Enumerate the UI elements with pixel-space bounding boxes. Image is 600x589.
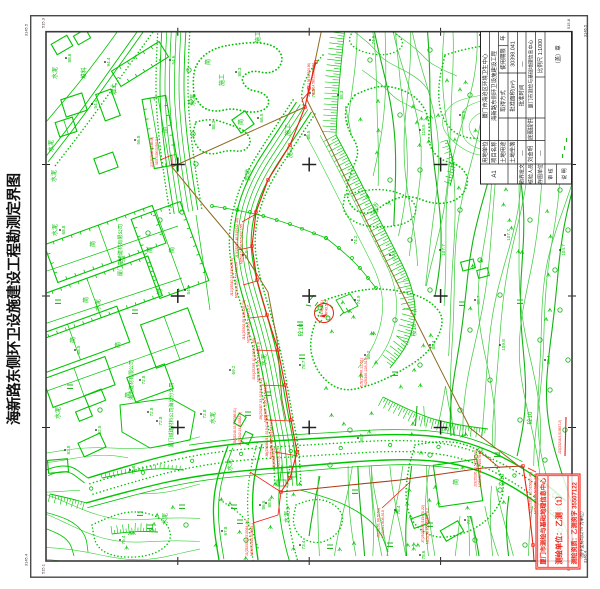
svg-text:水泥: 水泥	[209, 412, 217, 424]
svg-text:107.7: 107.7	[441, 244, 446, 256]
svg-text:104.7: 104.7	[561, 244, 566, 256]
svg-text:88.5: 88.5	[306, 130, 311, 139]
svg-text:J1(25203.92,515364.41): J1(25203.92,515364.41)	[245, 520, 249, 556]
svg-text:78.6: 78.6	[421, 550, 426, 559]
svg-text:N25340.128,515: N25340.128,515	[364, 358, 368, 386]
svg-text:厦门市海沧区环境卫生中心: 厦门市海沧区环境卫生中心	[481, 53, 489, 118]
svg-text:74.2: 74.2	[353, 235, 358, 244]
svg-text:72.8: 72.8	[202, 409, 207, 418]
svg-text:填土: 填土	[110, 83, 118, 95]
svg-text:3146.5: 3146.5	[583, 24, 588, 37]
svg-text:取得方式: 取得方式	[499, 90, 507, 112]
svg-text:J12(25310.23,515428.6): J12(25310.23,515428.6)	[230, 258, 234, 296]
svg-text:土地坐落: 土地坐落	[509, 141, 517, 163]
svg-text:水泥: 水泥	[161, 513, 169, 525]
svg-text:J11(25302.95,515425.78): J11(25302.95,515425.78)	[242, 300, 246, 340]
svg-text:A1: A1	[492, 170, 498, 178]
svg-text:测绘单位： 乙测 （1）: 测绘单位： 乙测 （1）	[555, 492, 564, 565]
svg-text:存图单位: 存图单位	[537, 164, 544, 184]
svg-text:菜地: 菜地	[244, 169, 252, 181]
svg-text:底图提供: 底图提供	[527, 118, 535, 140]
svg-text:施工: 施工	[286, 146, 294, 158]
svg-text:简: 简	[114, 342, 122, 348]
svg-text:88.6: 88.6	[67, 53, 72, 62]
svg-text:N25295.105,515421.9: N25295.105,515421.9	[257, 342, 261, 382]
svg-text:水泥: 水泥	[51, 224, 59, 236]
svg-text:515.3: 515.3	[41, 17, 46, 28]
svg-text:72.8: 72.8	[149, 407, 154, 416]
svg-text:82.8: 82.8	[66, 445, 71, 454]
svg-text:刘金明: 刘金明	[527, 146, 535, 162]
svg-text:N743,515: N743,515	[325, 300, 329, 316]
svg-text:J17(25370.80,515365.01): J17(25370.80,515365.01)	[150, 137, 154, 167]
svg-text:桉10: 桉10	[410, 323, 418, 336]
svg-text:515.1: 515.1	[41, 563, 46, 574]
svg-text:厦门市测绘与基础地理信息中心: 厦门市测绘与基础地理信息中心	[539, 477, 547, 565]
svg-text:88.7: 88.7	[476, 295, 481, 304]
svg-text:简: 简	[237, 119, 245, 125]
svg-text:N25231.55,5: N25231.55,5	[277, 448, 281, 467]
svg-text:简: 简	[146, 247, 154, 253]
svg-text:N25302.955,515425.7: N25302.955,515425.7	[247, 305, 251, 343]
svg-text:施工: 施工	[254, 31, 262, 43]
svg-text:J6(25251.60,5153): J6(25251.60,5153)	[377, 508, 381, 538]
svg-text:N25230.418,515570.1: N25230.418,515570.1	[478, 452, 482, 487]
svg-text:J22(25248.9,515637.2): J22(25248.9,515637.2)	[558, 420, 562, 454]
svg-text:86.5: 86.5	[261, 500, 266, 509]
svg-text:72.4: 72.4	[466, 515, 471, 524]
svg-text:海沧建材有限公司: 海沧建材有限公司	[128, 360, 135, 400]
svg-text:堆料: 堆料	[80, 67, 88, 79]
svg-text:88.5: 88.5	[267, 498, 272, 507]
svg-text:水泥: 水泥	[283, 511, 291, 523]
svg-text:简: 简	[69, 337, 77, 343]
svg-text:简: 简	[156, 289, 164, 295]
svg-text:3145.5: 3145.5	[24, 23, 29, 36]
svg-text:砼10: 砼10	[526, 411, 534, 424]
svg-text:J7(25258.85,515470.22): J7(25258.85,515470.22)	[421, 505, 425, 543]
svg-text:填沙: 填沙	[372, 202, 380, 214]
svg-text:J5(25248.33,515386.91): J5(25248.33,515386.91)	[233, 408, 237, 444]
svg-text:88.7: 88.7	[359, 433, 364, 442]
svg-text:54.6: 54.6	[171, 55, 176, 64]
svg-text:J21(25208.15,515600.41): J21(25208.15,515600.41)	[529, 472, 533, 514]
svg-text:107.7: 107.7	[506, 229, 511, 241]
svg-text:杂10: 杂10	[499, 473, 506, 486]
svg-text:水泥: 水泥	[54, 407, 62, 419]
svg-text:海新路东侧环卫设施建设工程勘测定界图: 海新路东侧环卫设施建设工程勘测定界图	[5, 173, 23, 425]
svg-text:简: 简	[89, 241, 97, 247]
svg-text:J10(25295.10,515421.95): J10(25295.10,515421.95)	[252, 338, 256, 380]
svg-text:勘界批文: 勘界批文	[519, 164, 526, 184]
svg-text:J2(25231.5,51): J2(25231.5,51)	[272, 448, 276, 468]
svg-text:88.3: 88.3	[211, 120, 216, 129]
svg-text:简: 简	[161, 127, 169, 133]
svg-text:—: —	[520, 61, 526, 67]
svg-text:J9(25287.33,515418.12): J9(25287.33,515418.12)	[259, 378, 263, 420]
svg-text:水泥: 水泥	[189, 94, 197, 106]
svg-text:（盖）章: （盖）章	[554, 45, 562, 67]
svg-text:—: —	[538, 150, 544, 156]
svg-text:54.4: 54.4	[93, 99, 98, 108]
svg-text:J23(25230.41,515570.11): J23(25230.41,515570.11)	[474, 450, 478, 487]
svg-text:简: 简	[82, 297, 90, 303]
svg-text:年: 年	[499, 35, 507, 41]
svg-text:74.9: 74.9	[391, 250, 396, 259]
svg-text:98.6: 98.6	[461, 110, 466, 119]
svg-text:水泥: 水泥	[226, 459, 234, 471]
svg-text:73.4: 73.4	[301, 540, 306, 549]
svg-text:审 核: 审 核	[548, 168, 555, 179]
svg-text:测绘资质：乙测资字 35507122: 测绘资质：乙测资字 35507122	[571, 481, 579, 564]
svg-text:简: 简	[168, 247, 176, 253]
svg-text:88.4: 88.4	[546, 355, 551, 364]
svg-text:土地用途: 土地用途	[499, 141, 507, 163]
svg-text:J4(25242.15,515382.4): J4(25242.15,515382.4)	[238, 412, 242, 446]
svg-text:30398.041: 30398.041	[511, 41, 517, 66]
svg-text:用地单位: 用地单位	[481, 141, 489, 163]
svg-text:68.8: 68.8	[61, 225, 66, 234]
svg-text:施工: 施工	[284, 124, 292, 136]
svg-text:3145.4: 3145.4	[24, 553, 29, 566]
svg-text:N25310.235,515428.64: N25310.235,515428.64	[235, 262, 239, 298]
svg-text:比例尺 1:1000: 比例尺 1:1000	[536, 39, 544, 73]
svg-text:施工: 施工	[218, 74, 226, 86]
svg-text:水泥: 水泥	[50, 170, 58, 182]
svg-text:66.5: 66.5	[259, 113, 264, 122]
svg-text:项目名称: 项目名称	[490, 141, 498, 163]
svg-text:水泥: 水泥	[51, 67, 59, 79]
svg-text:75.4: 75.4	[121, 535, 126, 544]
svg-text:N25203.925,515364.1: N25203.925,515364.1	[250, 523, 254, 556]
svg-text:72.8: 72.8	[131, 465, 136, 474]
svg-text:海新路东侧环卫设施建设工程: 海新路东侧环卫设施建设工程	[490, 50, 498, 121]
svg-text:水泥: 水泥	[260, 354, 268, 366]
svg-text:简: 简	[452, 479, 460, 485]
svg-text:厦门市测绘与基础地理信息中心: 厦门市测绘与基础地理信息中心	[528, 40, 535, 109]
svg-text:515.8: 515.8	[566, 18, 571, 29]
svg-text:N25258.855,515470.2: N25258.855,515470.2	[426, 508, 430, 544]
svg-text:J13(25317.46,515432.15): J13(25317.46,515432.15)	[235, 218, 239, 258]
svg-text:109.8: 109.8	[501, 339, 506, 351]
svg-text:56.8: 56.8	[136, 135, 141, 144]
svg-text:72.8: 72.8	[141, 375, 146, 384]
svg-text:N25317.468,515432.155: N25317.468,515432.155	[240, 224, 244, 264]
svg-text:说 明: 说 明	[561, 168, 568, 179]
svg-text:水泥: 水泥	[47, 140, 55, 152]
svg-text:69.2: 69.2	[231, 365, 236, 374]
svg-text:J20(25414.58,515526.90): J20(25414.58,515526.90)	[307, 63, 311, 97]
svg-text:简: 简	[204, 59, 212, 65]
svg-text:核验人员: 核验人员	[528, 164, 535, 184]
svg-text:厦门高崎建材有限公司: 厦门高崎建材有限公司	[116, 224, 124, 276]
svg-text:厦门城建材料公司海沧分公司: 厦门城建材料公司海沧分公司	[168, 382, 175, 447]
svg-text:J15(25340.12,51): J15(25340.12,51)	[360, 358, 364, 388]
svg-text:水泥: 水泥	[94, 299, 102, 311]
svg-text:88.5: 88.5	[76, 345, 81, 354]
svg-text:88.3: 88.3	[339, 90, 344, 99]
svg-text:N25414.588,515526.904: N25414.588,515526.904	[312, 63, 316, 95]
svg-text:88.4: 88.4	[431, 340, 436, 349]
svg-text:78.7: 78.7	[301, 360, 306, 369]
svg-text:砼10: 砼10	[297, 323, 305, 336]
svg-text:批准时间: 批准时间	[518, 85, 526, 107]
svg-text:（图中坐标均以“m”为单位）: （图中坐标均以“m”为单位）	[578, 509, 585, 561]
svg-text:N25370.806,515365.014: N25370.806,515365.014	[155, 137, 159, 165]
svg-text:使用期限: 使用期限	[499, 48, 507, 70]
svg-text:88.3: 88.3	[237, 67, 242, 76]
svg-text:批准面积(m²): 批准面积(m²)	[509, 80, 517, 112]
svg-text:82.5: 82.5	[97, 425, 102, 434]
svg-text:74.8: 74.8	[371, 35, 376, 44]
svg-text:67.8: 67.8	[223, 526, 228, 535]
svg-text:118.5: 118.5	[421, 124, 426, 136]
svg-text:—: —	[520, 150, 526, 156]
svg-text:84.8: 84.8	[186, 285, 191, 294]
svg-text:74.9(25.1): 74.9(25.1)	[320, 300, 324, 317]
svg-text:74.9: 74.9	[356, 295, 361, 304]
svg-text:72.8: 72.8	[158, 416, 163, 425]
svg-text:J8(25280.51,515413.90): J8(25280.51,515413.90)	[265, 415, 269, 457]
svg-text:94.4: 94.4	[106, 57, 111, 66]
svg-text:N25251.608,515: N25251.608,515	[381, 510, 385, 538]
